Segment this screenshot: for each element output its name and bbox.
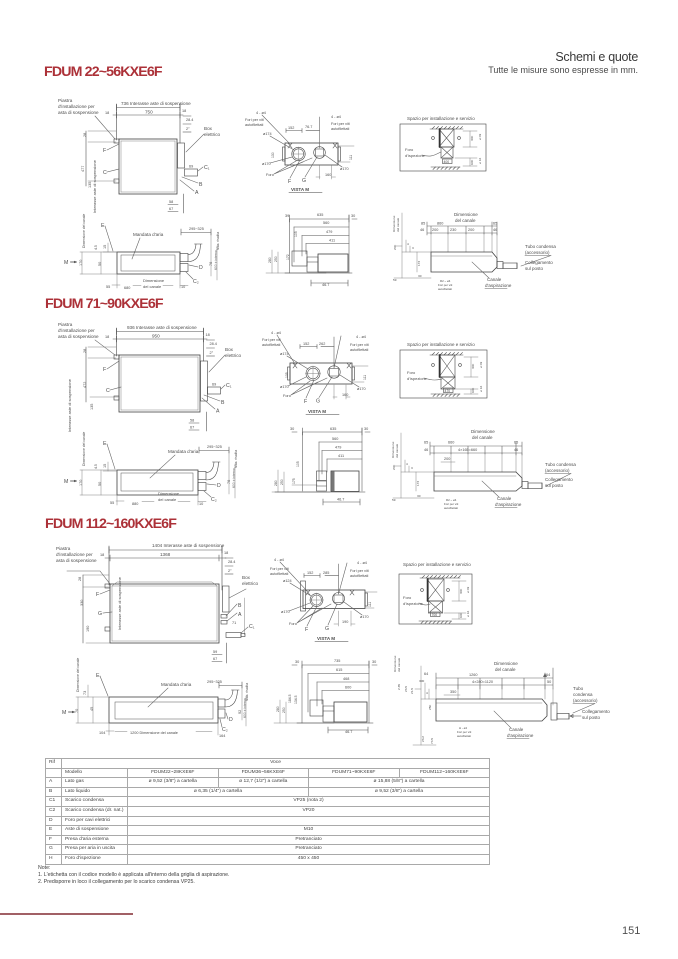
svg-text:ø174: ø174	[263, 132, 272, 136]
svg-text:ø124: ø124	[283, 579, 292, 583]
svg-text:A: A	[216, 409, 220, 415]
svg-text:936 Interasse aste di sospen: 936 Interasse aste di sospensione	[127, 325, 197, 330]
svg-text:F: F	[305, 627, 308, 633]
svg-text:700: 700	[432, 613, 438, 617]
svg-text:295~325: 295~325	[207, 680, 222, 684]
svg-text:135: 135	[285, 372, 289, 378]
svg-text:C: C	[103, 170, 107, 176]
svg-text:Tubo: Tubo	[573, 686, 584, 691]
svg-text:70: 70	[75, 709, 79, 713]
svg-text:67: 67	[169, 207, 173, 211]
svg-text:elettrico: elettrico	[225, 353, 242, 358]
svg-text:3: 3	[411, 466, 413, 470]
svg-text:300: 300	[471, 364, 475, 369]
svg-text:Dimensione del canale: Dimensione del canale	[76, 658, 80, 692]
svg-text:280: 280	[274, 480, 278, 486]
svg-text:d'ispezione: d'ispezione	[407, 376, 428, 381]
svg-text:F: F	[103, 148, 106, 154]
svg-text:184.5: 184.5	[288, 694, 292, 703]
svg-text:2°: 2°	[228, 569, 232, 573]
svg-text:Canale: Canale	[497, 496, 512, 501]
svg-text:autofilettati: autofilettati	[331, 127, 350, 131]
svg-text:autofilettati: autofilettati	[262, 343, 281, 347]
svg-text:172: 172	[417, 261, 421, 266]
svg-text:50: 50	[98, 262, 102, 266]
svg-text:18: 18	[182, 109, 186, 113]
svg-text:635: 635	[317, 213, 323, 217]
svg-text:Mandata d'aria: Mandata d'aria	[161, 682, 192, 687]
svg-text:2.35: 2.35	[397, 684, 401, 690]
svg-text:58: 58	[190, 419, 194, 423]
svg-text:280: 280	[276, 706, 280, 712]
svg-text:Fori per viti: Fori per viti	[331, 122, 350, 126]
svg-text:4: 4	[426, 691, 428, 695]
svg-text:200: 200	[444, 457, 450, 461]
svg-text:Fori per viti: Fori per viti	[270, 567, 289, 571]
svg-text:C₂: C₂	[193, 279, 199, 285]
svg-text:23.2: 23.2	[421, 736, 425, 742]
svg-text:160: 160	[342, 393, 348, 397]
svg-text:615: 615	[336, 668, 342, 672]
svg-text:15: 15	[103, 245, 107, 249]
svg-text:28.4: 28.4	[210, 342, 217, 346]
svg-text:74.5: 74.5	[430, 738, 434, 744]
svg-text:D: D	[229, 717, 233, 723]
svg-text:560: 560	[323, 221, 329, 225]
svg-text:635: 635	[330, 427, 336, 431]
svg-text:200: 200	[468, 228, 474, 232]
svg-text:ø 16: ø 16	[466, 611, 470, 617]
svg-text:A: A	[195, 190, 199, 196]
svg-text:Spazio per installazione e ser: Spazio per installazione e servizio	[403, 562, 471, 567]
svg-text:105: 105	[296, 461, 300, 467]
svg-text:autofilettati: autofilettati	[457, 734, 471, 738]
svg-text:B: B	[221, 400, 225, 406]
svg-text:50: 50	[547, 680, 551, 684]
svg-text:Interasse aste di sospensione: Interasse aste di sospensione	[67, 378, 72, 432]
svg-text:111: 111	[349, 155, 353, 160]
svg-text:735: 735	[334, 659, 340, 663]
svg-text:28: 28	[83, 133, 87, 137]
svg-text:190: 190	[342, 620, 348, 624]
svg-text:164: 164	[219, 734, 225, 738]
svg-text:59: 59	[393, 278, 397, 282]
svg-text:d'installazione per: d'installazione per	[56, 552, 93, 557]
svg-text:autofilettati: autofilettati	[350, 348, 369, 352]
svg-text:Dimensione: Dimensione	[494, 661, 518, 666]
svg-text:21.5: 21.5	[410, 688, 414, 694]
svg-text:660: 660	[448, 441, 454, 445]
svg-text:ø 09: ø 09	[479, 362, 483, 368]
svg-text:1260: 1260	[469, 673, 477, 677]
svg-text:104: 104	[99, 731, 105, 735]
svg-text:F: F	[96, 592, 99, 598]
svg-text:28.4: 28.4	[186, 118, 193, 122]
svg-text:del canale: del canale	[455, 218, 476, 223]
svg-text:160: 160	[325, 173, 331, 177]
svg-text:250: 250	[282, 707, 286, 713]
svg-text:18: 18	[105, 335, 109, 339]
svg-text:600: 600	[459, 613, 463, 618]
svg-text:280: 280	[268, 257, 272, 263]
svg-text:Dimensione: Dimensione	[143, 278, 165, 283]
svg-text:del canale: del canale	[472, 435, 493, 440]
svg-text:del canale: del canale	[158, 497, 177, 502]
svg-text:Interasse aste di sospensione: Interasse aste di sospensione	[92, 159, 97, 213]
svg-text:250: 250	[428, 705, 432, 710]
svg-text:230: 230	[450, 228, 456, 232]
svg-text:B: B	[238, 603, 242, 609]
svg-text:G: G	[325, 626, 329, 632]
svg-text:A: A	[238, 612, 242, 618]
svg-text:46.7: 46.7	[345, 730, 352, 734]
svg-text:Canale: Canale	[487, 277, 502, 282]
svg-text:C: C	[106, 388, 110, 394]
svg-text:111: 111	[363, 375, 367, 380]
svg-text:d'installazione per: d'installazione per	[58, 328, 95, 333]
svg-text:680: 680	[124, 286, 130, 290]
svg-text:477: 477	[81, 166, 85, 172]
svg-text:67: 67	[213, 657, 217, 661]
svg-text:300: 300	[459, 589, 463, 594]
svg-text:asta di sospensione: asta di sospensione	[58, 110, 99, 115]
svg-text:46.7: 46.7	[337, 498, 344, 502]
svg-text:del canale: del canale	[395, 444, 399, 458]
svg-text:69: 69	[212, 383, 216, 387]
svg-text:45: 45	[90, 707, 94, 711]
svg-text:autofilettati: autofilettati	[350, 574, 369, 578]
svg-text:Dimensione: Dimensione	[158, 491, 180, 496]
svg-text:15: 15	[103, 464, 107, 468]
svg-text:E: E	[101, 223, 105, 229]
svg-text:VISTA M: VISTA M	[317, 636, 335, 641]
svg-text:Tubo condensa: Tubo condensa	[525, 244, 556, 249]
svg-text:ø 09: ø 09	[466, 587, 470, 593]
svg-text:55: 55	[110, 501, 114, 505]
svg-text:VISTA M: VISTA M	[308, 409, 326, 414]
svg-text:28: 28	[78, 577, 82, 581]
svg-text:18: 18	[105, 111, 109, 115]
svg-text:4 - ø4: 4 - ø4	[256, 111, 266, 115]
svg-text:200: 200	[393, 245, 397, 250]
svg-text:92: 92	[238, 710, 242, 714]
svg-text:ø174: ø174	[280, 352, 289, 356]
svg-text:55: 55	[106, 285, 110, 289]
svg-text:111: 111	[368, 602, 372, 607]
svg-text:d'aspirazione: d'aspirazione	[485, 283, 512, 288]
svg-text:Piastra: Piastra	[58, 98, 73, 103]
svg-text:ø170: ø170	[262, 162, 271, 166]
svg-text:105: 105	[294, 231, 298, 237]
svg-text:470: 470	[445, 389, 451, 393]
svg-text:G: G	[98, 611, 102, 617]
svg-text:4 - ø4: 4 - ø4	[331, 115, 341, 119]
svg-text:30: 30	[290, 427, 294, 431]
svg-text:(accessorio): (accessorio)	[525, 250, 550, 255]
svg-text:ø170: ø170	[340, 167, 349, 171]
svg-text:30: 30	[418, 274, 422, 278]
svg-text:ø 09: ø 09	[478, 134, 482, 140]
svg-text:76.7: 76.7	[305, 125, 312, 129]
svg-text:411: 411	[329, 239, 335, 243]
svg-text:65: 65	[424, 441, 428, 445]
svg-text:Fori per viti: Fori per viti	[350, 343, 369, 347]
svg-text:Spazio per installazione e ser: Spazio per installazione e servizio	[407, 342, 475, 347]
svg-text:Collegamento: Collegamento	[582, 709, 610, 714]
svg-text:950: 950	[152, 334, 160, 339]
svg-text:71: 71	[232, 621, 236, 625]
svg-text:Max. risalita: Max. risalita	[216, 232, 220, 250]
svg-text:ø170: ø170	[357, 387, 366, 391]
svg-text:350: 350	[450, 690, 456, 694]
svg-text:50: 50	[98, 482, 102, 486]
svg-text:4.5: 4.5	[94, 245, 98, 250]
svg-text:(accessorio): (accessorio)	[573, 698, 598, 703]
svg-text:135: 135	[90, 404, 94, 410]
svg-text:73: 73	[83, 691, 87, 695]
svg-text:300: 300	[470, 136, 474, 141]
svg-text:600 ± interno: 600 ± interno	[214, 250, 218, 270]
svg-text:elettrico: elettrico	[204, 132, 221, 137]
svg-text:1404 Interasse aste di sospe: 1404 Interasse aste di sospensione	[152, 543, 225, 548]
svg-text:2°: 2°	[186, 127, 190, 131]
svg-text:4×165=660: 4×165=660	[458, 448, 477, 452]
svg-text:190: 190	[86, 626, 90, 632]
svg-text:(accessorio): (accessorio)	[545, 468, 570, 473]
svg-text:Dimensione del canale: Dimensione del canale	[82, 432, 86, 466]
svg-text:295~325: 295~325	[189, 227, 204, 231]
svg-text:170: 170	[79, 480, 83, 486]
svg-text:M: M	[64, 479, 68, 485]
svg-text:67: 67	[190, 426, 194, 430]
svg-text:10: 10	[199, 502, 203, 506]
svg-text:30: 30	[364, 427, 368, 431]
svg-text:d'aspirazione: d'aspirazione	[507, 733, 534, 738]
svg-text:Dimensione del canale: Dimensione del canale	[82, 214, 86, 248]
svg-text:600: 600	[470, 160, 474, 165]
svg-text:ø 16: ø 16	[479, 386, 483, 392]
svg-text:G: G	[302, 178, 306, 184]
svg-text:560: 560	[332, 437, 338, 441]
svg-text:200: 200	[392, 465, 396, 470]
svg-text:59: 59	[392, 498, 396, 502]
svg-text:28: 28	[83, 349, 87, 353]
svg-text:4×280=1120: 4×280=1120	[472, 680, 493, 684]
svg-text:4.5: 4.5	[94, 464, 98, 469]
svg-text:46: 46	[493, 228, 497, 232]
svg-text:ø170: ø170	[360, 615, 369, 619]
svg-text:Fori per viti: Fori per viti	[262, 338, 281, 342]
svg-text:18: 18	[224, 551, 228, 555]
svg-text:4: 4	[406, 462, 408, 466]
svg-text:Foro: Foro	[266, 173, 274, 177]
svg-text:262: 262	[319, 342, 325, 346]
svg-text:64: 64	[424, 672, 428, 676]
svg-text:E: E	[96, 673, 100, 679]
svg-text:del canale: del canale	[143, 284, 162, 289]
svg-text:elettrico: elettrico	[242, 581, 259, 586]
svg-text:860: 860	[437, 222, 443, 226]
svg-text:65: 65	[493, 222, 497, 226]
svg-text:600 ± interno: 600 ± interno	[232, 468, 236, 488]
svg-text:18: 18	[206, 333, 210, 337]
svg-text:E: E	[103, 441, 107, 447]
svg-text:D: D	[217, 483, 221, 489]
svg-text:Canale: Canale	[509, 727, 524, 732]
svg-text:152: 152	[303, 342, 309, 346]
svg-text:Box: Box	[242, 575, 251, 580]
svg-text:4 - ø4: 4 - ø4	[274, 558, 284, 562]
svg-text:sul posto: sul posto	[525, 266, 544, 271]
svg-text:468: 468	[343, 677, 349, 681]
svg-text:B: B	[199, 182, 203, 188]
svg-text:58: 58	[169, 200, 173, 204]
svg-text:sul posto: sul posto	[582, 715, 601, 720]
svg-text:479: 479	[326, 230, 332, 234]
svg-text:autofilettati: autofilettati	[270, 572, 289, 576]
svg-text:880: 880	[132, 502, 138, 506]
svg-text:30: 30	[295, 660, 299, 664]
svg-text:d'aspirazione: d'aspirazione	[495, 502, 522, 507]
svg-text:69: 69	[189, 165, 193, 169]
svg-text:600: 600	[471, 388, 475, 393]
svg-text:46: 46	[420, 228, 424, 232]
svg-text:200: 200	[432, 228, 438, 232]
svg-text:D: D	[199, 265, 203, 271]
svg-text:4 - ø4: 4 - ø4	[271, 331, 281, 335]
svg-text:Spazio per installazione e ser: Spazio per installazione e servizio	[407, 116, 475, 121]
svg-text:ø170: ø170	[280, 385, 289, 389]
svg-text:175: 175	[292, 478, 296, 484]
svg-text:172: 172	[286, 254, 290, 260]
svg-text:Piastra: Piastra	[58, 322, 73, 327]
svg-text:172: 172	[416, 481, 420, 486]
svg-text:3: 3	[412, 246, 414, 250]
svg-text:F: F	[103, 367, 106, 373]
svg-text:ø 16: ø 16	[478, 158, 482, 164]
svg-text:Dimensione: Dimensione	[471, 429, 495, 434]
svg-text:Collegamento: Collegamento	[545, 477, 573, 482]
svg-text:330: 330	[80, 600, 84, 606]
svg-text:300: 300	[419, 679, 424, 683]
svg-text:1200 Dimensione del canale: 1200 Dimensione del canale	[130, 731, 178, 735]
svg-text:Foro: Foro	[283, 394, 291, 398]
svg-text:152: 152	[288, 126, 294, 130]
svg-text:d'ispezione: d'ispezione	[405, 153, 426, 158]
svg-text:Foro: Foro	[405, 147, 414, 152]
svg-text:VISTA M: VISTA M	[291, 187, 309, 192]
svg-text:4: 4	[407, 242, 409, 246]
svg-text:autofilettati: autofilettati	[444, 506, 458, 510]
svg-text:autofilettati: autofilettati	[245, 123, 264, 127]
svg-text:asta di sospensione: asta di sospensione	[58, 334, 99, 339]
svg-text:479: 479	[335, 446, 341, 450]
svg-text:Foro: Foro	[407, 370, 416, 375]
svg-text:2°: 2°	[210, 351, 214, 355]
svg-text:750: 750	[145, 110, 153, 115]
svg-text:46: 46	[424, 448, 428, 452]
svg-text:1368: 1368	[160, 552, 171, 557]
svg-text:asta di sospensione: asta di sospensione	[56, 558, 97, 563]
svg-text:autofilettati: autofilettati	[438, 287, 452, 291]
svg-text:Interasse aste di sospensione: Interasse aste di sospensione	[117, 576, 122, 630]
svg-text:C₂: C₂	[211, 497, 217, 503]
svg-text:250: 250	[274, 256, 278, 262]
svg-text:C₁: C₁	[204, 165, 210, 171]
svg-text:85: 85	[421, 222, 425, 226]
svg-text:F: F	[288, 179, 291, 185]
svg-text:134.5: 134.5	[294, 695, 298, 704]
svg-text:del canale: del canale	[495, 667, 516, 672]
svg-text:C₁: C₁	[249, 624, 255, 630]
svg-text:ø170: ø170	[281, 610, 290, 614]
svg-text:M: M	[64, 260, 68, 266]
svg-text:Fori per viti: Fori per viti	[350, 569, 369, 573]
svg-text:59: 59	[213, 650, 217, 654]
svg-text:sul posto: sul posto	[545, 483, 564, 488]
svg-text:Tubo condensa: Tubo condensa	[545, 462, 576, 467]
svg-text:del canale: del canale	[397, 658, 401, 672]
svg-text:Box: Box	[225, 347, 234, 352]
svg-text:4 - ø4: 4 - ø4	[356, 335, 366, 339]
svg-text:30: 30	[351, 214, 355, 218]
svg-text:Mandata d'aria: Mandata d'aria	[133, 232, 164, 237]
svg-text:295~325: 295~325	[207, 445, 222, 449]
svg-text:G: G	[316, 399, 320, 405]
svg-text:28.4: 28.4	[228, 560, 235, 564]
svg-text:411: 411	[338, 454, 344, 458]
svg-text:Max. risalita: Max. risalita	[234, 450, 238, 468]
svg-text:130: 130	[271, 152, 275, 158]
svg-text:F: F	[304, 399, 307, 405]
svg-text:Piastra: Piastra	[56, 546, 71, 551]
svg-text:152: 152	[307, 571, 313, 575]
svg-text:Collegamento: Collegamento	[525, 260, 553, 265]
svg-text:250: 250	[280, 479, 284, 485]
svg-text:472: 472	[83, 382, 87, 388]
svg-text:600: 600	[345, 686, 351, 690]
svg-text:C₁: C₁	[226, 383, 232, 389]
svg-text:M: M	[62, 710, 66, 716]
svg-text:Dimensione: Dimensione	[454, 212, 478, 217]
svg-text:del canale: del canale	[396, 218, 400, 232]
svg-text:18: 18	[100, 553, 104, 557]
svg-text:condensa: condensa	[573, 692, 593, 697]
svg-text:Foro: Foro	[289, 622, 297, 626]
svg-text:23.5: 23.5	[404, 686, 408, 692]
svg-text:400: 400	[444, 160, 450, 164]
svg-text:600 ± interno: 600 ± interno	[243, 698, 247, 718]
svg-text:4 - ø4: 4 - ø4	[357, 561, 367, 565]
svg-text:30: 30	[417, 494, 421, 498]
svg-text:170: 170	[79, 260, 83, 266]
svg-text:285: 285	[323, 571, 329, 575]
svg-text:d'installazione per: d'installazione per	[58, 104, 95, 109]
svg-text:736 Interasse aste di sospen: 736 Interasse aste di sospensione	[121, 101, 191, 106]
svg-text:30: 30	[372, 660, 376, 664]
svg-text:Foro: Foro	[403, 595, 412, 600]
svg-text:Box: Box	[204, 126, 213, 131]
svg-text:39: 39	[285, 214, 289, 218]
svg-text:Fori per viti: Fori per viti	[245, 118, 264, 122]
svg-text:Mandata d'aria: Mandata d'aria	[168, 449, 199, 454]
svg-text:46.7: 46.7	[322, 283, 329, 287]
svg-text:C₂: C₂	[222, 727, 228, 733]
